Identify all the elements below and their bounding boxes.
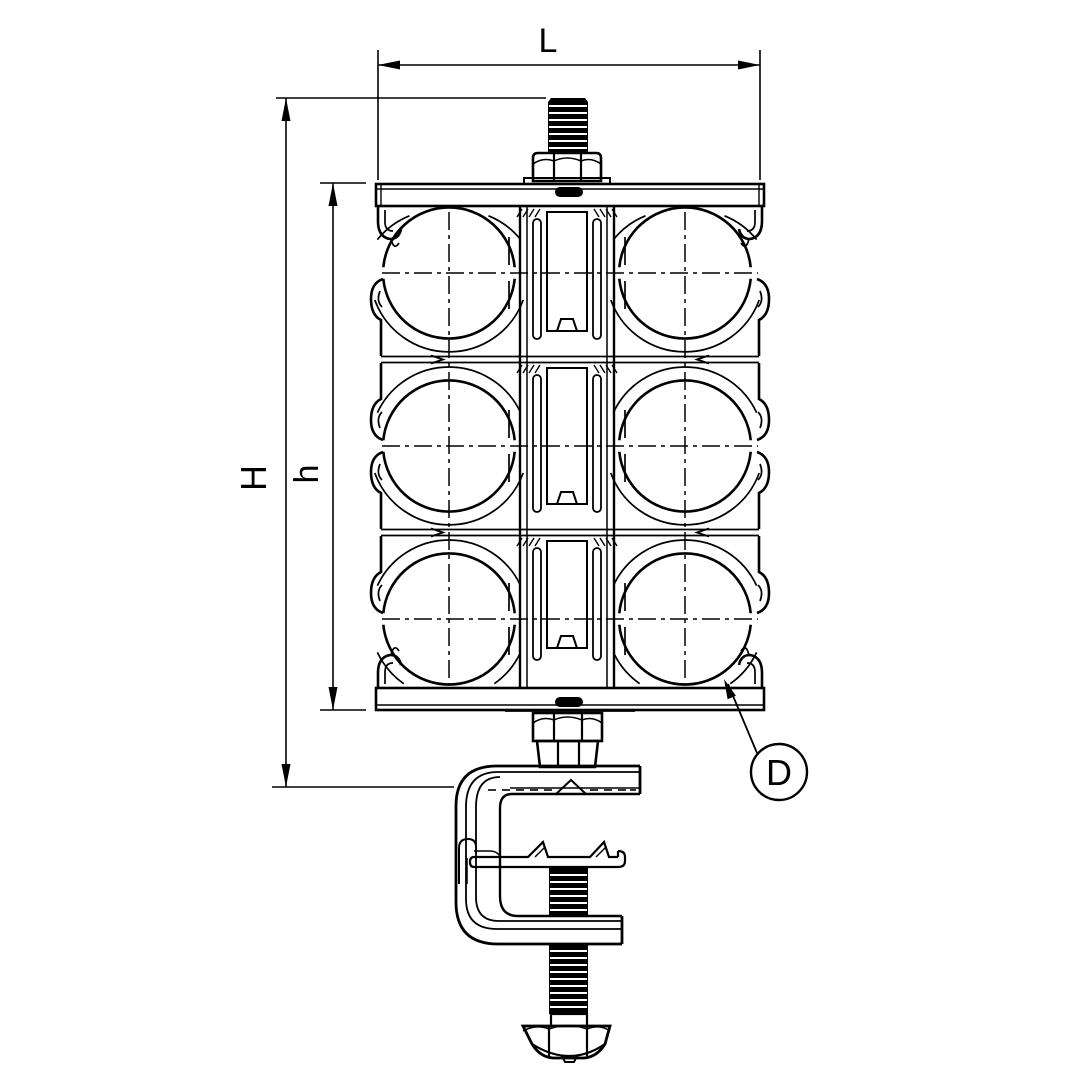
top-plate [376, 184, 764, 206]
cleat-edges-bowtie-2 [371, 452, 769, 613]
label-H: H [233, 465, 274, 491]
clamp-screw [549, 867, 588, 1026]
bottom-plate [376, 688, 764, 710]
g-clamp [456, 766, 640, 944]
cleat-edges-bowtie-1 [371, 279, 769, 440]
label-h: h [288, 465, 326, 484]
center-spine [517, 206, 617, 688]
cleat-row-3 [377, 540, 756, 685]
spine-serrations [517, 209, 617, 546]
cleat-stack [371, 206, 769, 688]
top-nut [524, 153, 610, 184]
clamp-jaw-serrations [488, 780, 636, 794]
detail-callout-D: D [724, 679, 807, 800]
bolt-head [523, 1026, 610, 1063]
stack-nuts [505, 711, 635, 767]
top-stud [548, 98, 588, 154]
clamp-clip [459, 839, 476, 884]
label-L: L [539, 22, 558, 60]
centerlines [382, 212, 758, 684]
label-D: D [766, 752, 792, 793]
technical-drawing-canvas: L H h [0, 0, 1088, 1088]
dimension-H [272, 98, 546, 787]
dimension-h [320, 183, 366, 710]
clamp-pressure-pad [470, 842, 625, 867]
